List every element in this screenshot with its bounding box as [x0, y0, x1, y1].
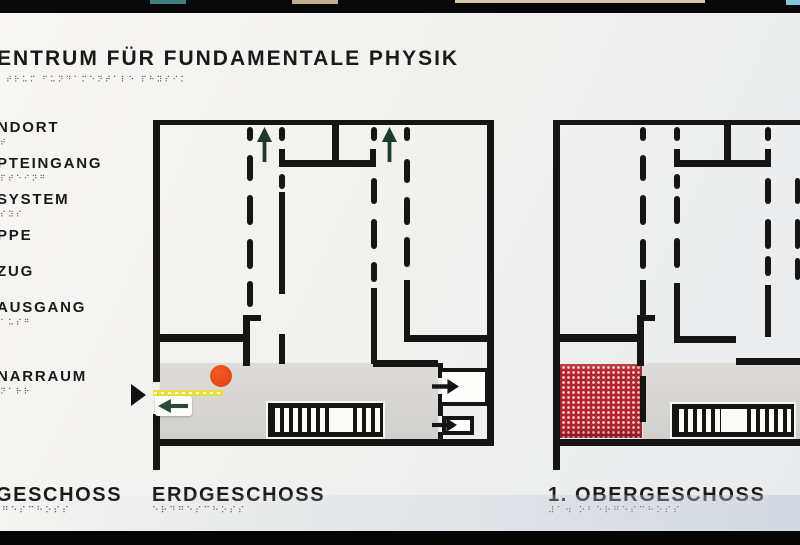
stair-landing	[721, 409, 747, 432]
dashed-wall	[279, 127, 285, 141]
background-sliver-cyan	[786, 0, 800, 5]
photo-bottom-frame	[0, 531, 800, 545]
stair-flight	[747, 409, 791, 432]
wall	[373, 360, 438, 367]
background-sliver-teal	[150, 0, 186, 4]
legend-item-label: AUSGANG	[0, 299, 86, 316]
floor-label: GESCHOSS	[0, 484, 122, 507]
dashed-wall	[765, 219, 771, 249]
background-sliver-tan2	[455, 0, 705, 3]
dashed-wall	[404, 159, 410, 183]
elevator-arrow-icon	[432, 379, 459, 394]
dashed-wall	[674, 196, 680, 224]
legend-item-braille: ⠝⠁⠗⠗	[0, 387, 31, 396]
floorplan-obergeschoss-1	[548, 118, 800, 470]
wall	[553, 120, 800, 125]
stair-landing	[333, 408, 353, 432]
legend-item-label: NDORT	[0, 119, 59, 136]
dashed-wall	[795, 219, 800, 249]
dashed-wall	[674, 238, 680, 268]
dashed-wall	[640, 127, 646, 141]
legend-item-braille: ⠎⠽⠎	[0, 210, 24, 219]
wall	[153, 120, 160, 382]
dashed-wall	[795, 178, 800, 204]
stair-flight	[675, 409, 721, 432]
floorplan-erdgeschoss	[148, 118, 497, 470]
dashed-wall	[640, 195, 646, 225]
stairs-icon	[268, 403, 383, 437]
wall	[279, 160, 376, 167]
up-arrow-icon	[256, 127, 273, 163]
legend-item-label: PPE	[0, 227, 32, 244]
floor-label-braille: ⠛⠑⠎⠉⠓⠕⠎⠎	[2, 506, 71, 516]
up-arrow-icon	[381, 127, 398, 163]
wall	[153, 120, 494, 125]
dashed-wall	[247, 281, 253, 307]
wall	[279, 149, 285, 167]
dashed-wall	[247, 195, 253, 225]
wall	[765, 285, 771, 337]
elevator-arrow-icon	[432, 418, 457, 432]
wall	[404, 335, 493, 342]
dashed-wall	[640, 239, 646, 269]
wall	[160, 334, 245, 342]
dashed-wall	[371, 178, 377, 204]
stair-flight	[353, 408, 380, 432]
wall	[637, 315, 644, 366]
dashed-wall	[247, 239, 253, 269]
highlighted-room-red	[555, 364, 642, 438]
dashed-wall	[371, 219, 377, 249]
wall	[560, 334, 639, 342]
photo-top-frame	[0, 0, 800, 13]
legend-item-braille: ⠞	[0, 138, 8, 147]
wall	[243, 315, 261, 321]
wall	[404, 280, 410, 342]
legend-item-label: SYSTEM	[0, 191, 69, 208]
legend-item-braille: ⠁⠥⠎⠛	[0, 318, 31, 327]
stair-flight	[271, 408, 333, 432]
dashed-wall	[765, 178, 771, 204]
dashed-wall	[795, 258, 800, 280]
stairs-treads	[675, 409, 791, 432]
dashed-wall	[371, 127, 377, 141]
wall	[279, 192, 285, 294]
legend-item-braille: ⠏⠞⠑⠊⠝⠛	[0, 174, 47, 183]
wall	[674, 149, 680, 167]
dashed-wall	[640, 155, 646, 181]
you-are-here-pointer-icon	[131, 384, 146, 406]
legend-item-label: ZUG	[0, 263, 34, 280]
wall	[279, 334, 285, 364]
sign-panel: ENTRUM FÜR FUNDAMENTALE PHYSIK ⠞⠗⠥⠍ ⠋⠥⠝⠙…	[0, 13, 800, 531]
wall	[640, 376, 646, 422]
wall	[553, 439, 800, 446]
dashed-wall	[765, 127, 771, 141]
wall	[640, 280, 646, 316]
dashed-wall	[674, 127, 680, 141]
background-sliver-tan	[292, 0, 338, 4]
tactile-sign-photo: { "sign": { "colors": { "wall": "#161514…	[0, 0, 800, 545]
wall	[674, 160, 771, 167]
wall	[724, 120, 731, 164]
wall	[243, 315, 250, 366]
dashed-wall	[765, 256, 771, 276]
legend-item-label: PTEINGANG	[0, 155, 102, 172]
wall	[736, 358, 800, 365]
wall	[553, 446, 560, 470]
wall	[332, 120, 339, 164]
floor-label: 1. OBERGESCHOSS	[548, 484, 765, 507]
wall	[153, 414, 160, 470]
dashed-wall	[371, 262, 377, 282]
dashed-wall	[404, 237, 410, 267]
stairs-icon	[672, 404, 794, 437]
wall	[553, 120, 560, 446]
dashed-wall	[404, 197, 410, 225]
wall	[153, 439, 494, 446]
wall	[674, 336, 736, 343]
dashed-wall	[247, 155, 253, 181]
wall	[674, 283, 680, 343]
wall	[371, 288, 377, 364]
dashed-wall	[279, 174, 285, 189]
dashed-wall	[404, 127, 410, 141]
floor-label-braille: ⠑⠗⠙⠛⠑⠎⠉⠓⠕⠎⠎	[152, 506, 247, 516]
sign-title-braille: ⠞⠗⠥⠍ ⠋⠥⠝⠙⠁⠍⠑⠝⠞⠁⠇⠑ ⠏⠓⠽⠎⠊⠅	[6, 75, 188, 84]
floor-label: ERDGESCHOSS	[152, 484, 325, 507]
guide-strip-dots	[154, 392, 222, 394]
stairs-treads	[271, 408, 380, 432]
dashed-wall	[247, 127, 253, 141]
floor-label-braille: ⠼⠁⠲ ⠕⠃⠑⠗⠛⠑⠎⠉⠓⠕⠎⠎	[548, 506, 682, 516]
dashed-wall	[674, 174, 680, 189]
wall	[765, 149, 771, 167]
entrance-arrow-icon	[158, 399, 188, 413]
sign-title: ENTRUM FÜR FUNDAMENTALE PHYSIK	[0, 47, 459, 71]
wall	[370, 149, 376, 167]
legend-item-label: NARRAUM	[0, 368, 87, 385]
location-dot	[210, 365, 232, 387]
